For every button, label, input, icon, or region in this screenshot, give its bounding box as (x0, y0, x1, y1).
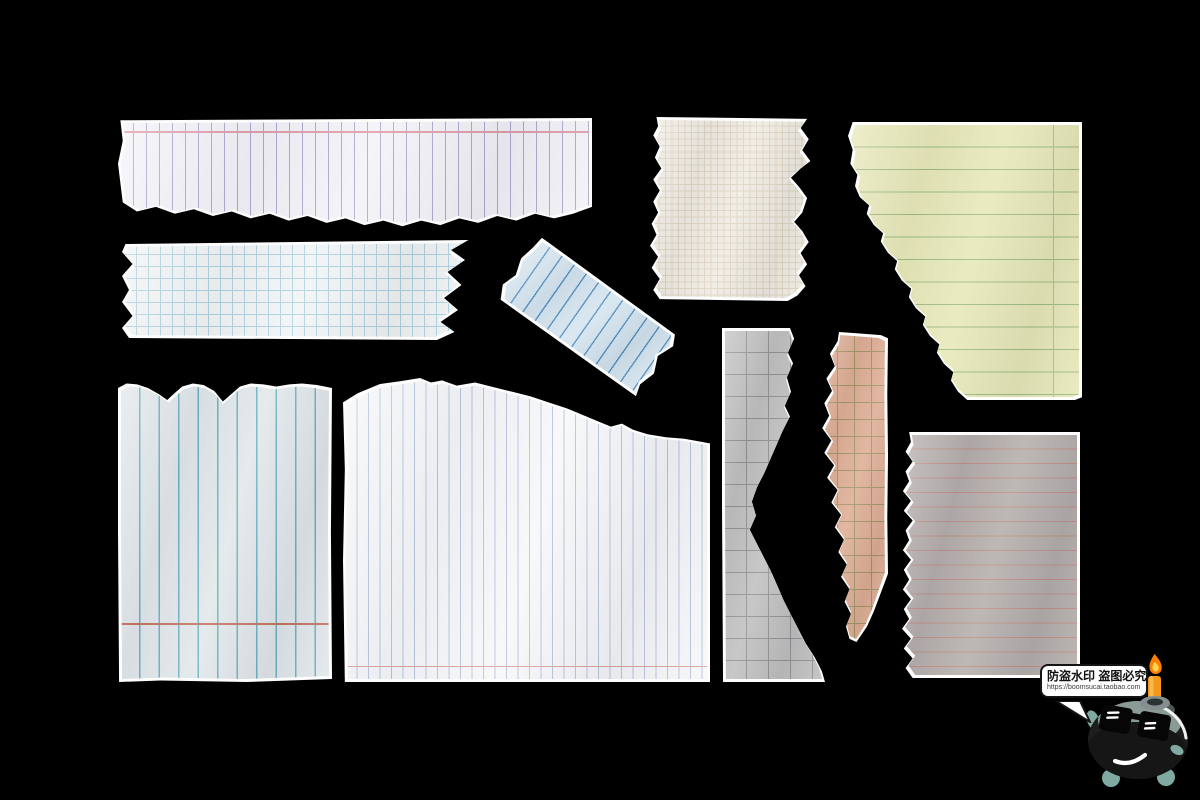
paper-sheen-overlay (121, 121, 589, 229)
paper-salmon-grid-strip (818, 332, 888, 642)
paper-white-fine-ruled-large-piece-surface (346, 381, 707, 679)
watermark-text: 防盗水印 盗图必究 (1047, 669, 1142, 683)
watermark-speech-bubble: 防盗水印 盗图必究 https://boomsucai.taobao.com (1040, 664, 1148, 698)
paper-cream-graph-piece-surface (653, 120, 809, 298)
paper-blue-grid-strip (122, 240, 472, 340)
paper-cream-graph-piece (650, 117, 812, 301)
paper-sheen-overlay (498, 239, 677, 393)
paper-taupe-ruled-piece-surface (905, 435, 1077, 675)
paper-blue-grid-strip-surface (125, 243, 469, 337)
watermark-url: https://boomsucai.taobao.com (1047, 684, 1142, 692)
paper-grey-blue-vertical-ruled-piece (118, 382, 332, 682)
paper-sheen-overlay (121, 385, 329, 679)
paper-sheen-overlay (125, 243, 469, 337)
scene: 防盗水印 盗图必究 https://boomsucai.taobao.com (0, 0, 1200, 800)
paper-blue-ruled-tilted-strip (494, 235, 681, 398)
paper-white-vertical-ruled-strip-surface (121, 121, 589, 229)
paper-sheen-overlay (821, 335, 885, 639)
paper-grey-blue-vertical-ruled-piece-surface (121, 385, 329, 679)
paper-sheen-overlay (725, 331, 822, 679)
paper-blue-ruled-tilted-strip-surface (498, 239, 677, 393)
pink-rule-line (346, 666, 707, 668)
paper-sheen-overlay (346, 381, 707, 679)
margin-line (1053, 125, 1055, 397)
paper-white-vertical-ruled-strip (118, 118, 592, 232)
paper-salmon-grid-strip-surface (821, 335, 885, 639)
speech-bubble-tail (1052, 701, 1092, 723)
red-rule-line (121, 623, 329, 625)
paper-sheen-overlay (653, 120, 809, 298)
pink-margin-line (121, 131, 589, 133)
paper-taupe-ruled-piece (902, 432, 1080, 678)
paper-white-fine-ruled-large-piece (343, 378, 710, 682)
cap-hole (1147, 699, 1163, 706)
paper-grey-grid-strip-surface (725, 331, 822, 679)
paper-grey-grid-strip (722, 328, 825, 682)
paper-sheen-overlay (905, 435, 1077, 675)
